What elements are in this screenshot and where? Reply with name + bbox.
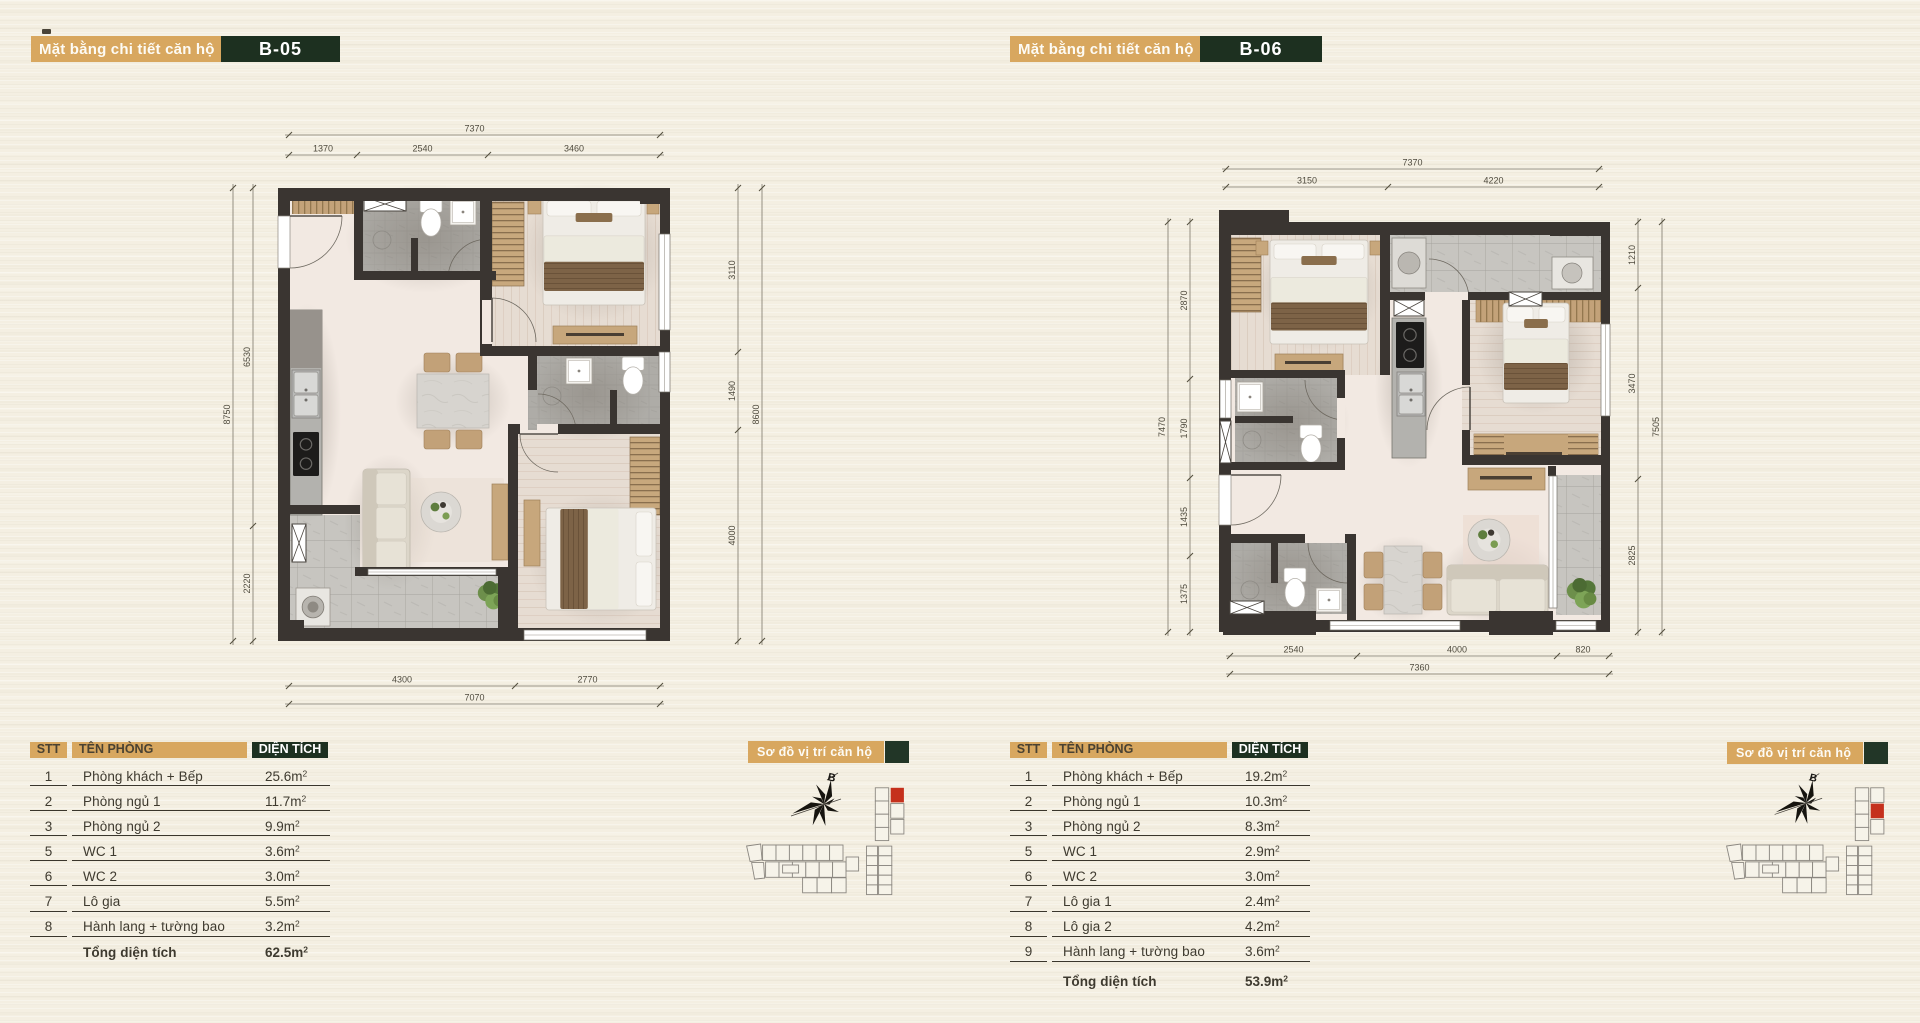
- svg-text:1435: 1435: [1179, 507, 1189, 527]
- svg-text:7470: 7470: [1157, 417, 1167, 437]
- svg-text:4000: 4000: [727, 525, 737, 545]
- svg-text:2540: 2540: [1283, 645, 1303, 655]
- svg-text:4220: 4220: [1483, 176, 1503, 186]
- svg-text:1210: 1210: [1627, 245, 1637, 265]
- svg-text:B: B: [1808, 772, 1818, 785]
- svg-text:4000: 4000: [1447, 645, 1467, 655]
- svg-text:820: 820: [1575, 645, 1590, 655]
- svg-text:1375: 1375: [1179, 584, 1189, 604]
- svg-text:8750: 8750: [222, 404, 232, 424]
- svg-text:7370: 7370: [464, 124, 484, 134]
- svg-text:7505: 7505: [1651, 417, 1661, 437]
- svg-text:7360: 7360: [1409, 663, 1429, 673]
- svg-text:7370: 7370: [1402, 158, 1422, 168]
- svg-text:2540: 2540: [412, 144, 432, 154]
- svg-text:3150: 3150: [1297, 176, 1317, 186]
- svg-text:2870: 2870: [1179, 290, 1189, 310]
- svg-text:2770: 2770: [577, 675, 597, 685]
- svg-text:6530: 6530: [242, 347, 252, 367]
- svg-text:4300: 4300: [392, 675, 412, 685]
- svg-text:1490: 1490: [727, 381, 737, 401]
- svg-text:1790: 1790: [1179, 418, 1189, 438]
- svg-text:3460: 3460: [564, 144, 584, 154]
- svg-text:3470: 3470: [1627, 373, 1637, 393]
- svg-text:2825: 2825: [1627, 545, 1637, 565]
- svg-text:7070: 7070: [464, 693, 484, 703]
- svg-text:B: B: [826, 771, 837, 785]
- svg-text:1370: 1370: [313, 144, 333, 154]
- svg-text:2220: 2220: [242, 573, 252, 593]
- svg-text:3110: 3110: [727, 260, 737, 279]
- svg-text:8600: 8600: [751, 404, 761, 424]
